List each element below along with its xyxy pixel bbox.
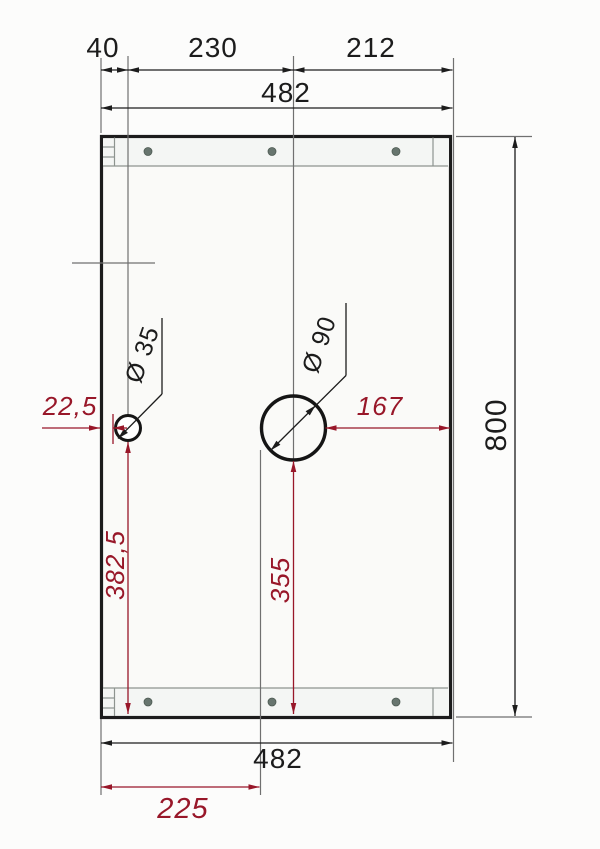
dim-top-230-label: 230: [188, 32, 238, 63]
dim-top-212-label: 212: [346, 32, 396, 63]
dim-top-40-label: 40: [86, 32, 119, 63]
panel-outline: [102, 137, 451, 718]
dim-22-5-label: 22,5: [42, 391, 98, 421]
screw-icon: [144, 698, 152, 706]
technical-drawing-page: 40 230 212 482 800 482 225 22,5 167 382,…: [0, 0, 600, 849]
dim-top-482-label: 482: [261, 77, 311, 108]
dim-height-800-label: 800: [480, 398, 513, 451]
dim-167-label: 167: [357, 391, 404, 421]
dim-382-5-label: 382,5: [100, 530, 130, 600]
dim-bottom-225-label: 225: [156, 793, 208, 825]
panel-drawing-canvas: 40 230 212 482 800 482 225 22,5 167 382,…: [0, 0, 600, 849]
screw-icon: [144, 148, 152, 156]
dim-bottom-482-label: 482: [253, 743, 303, 774]
dim-355-label: 355: [265, 557, 295, 603]
panel-rect: [102, 137, 451, 718]
screw-icon: [268, 698, 276, 706]
screw-icon: [392, 148, 400, 156]
screw-icon: [268, 148, 276, 156]
screw-icon: [392, 698, 400, 706]
